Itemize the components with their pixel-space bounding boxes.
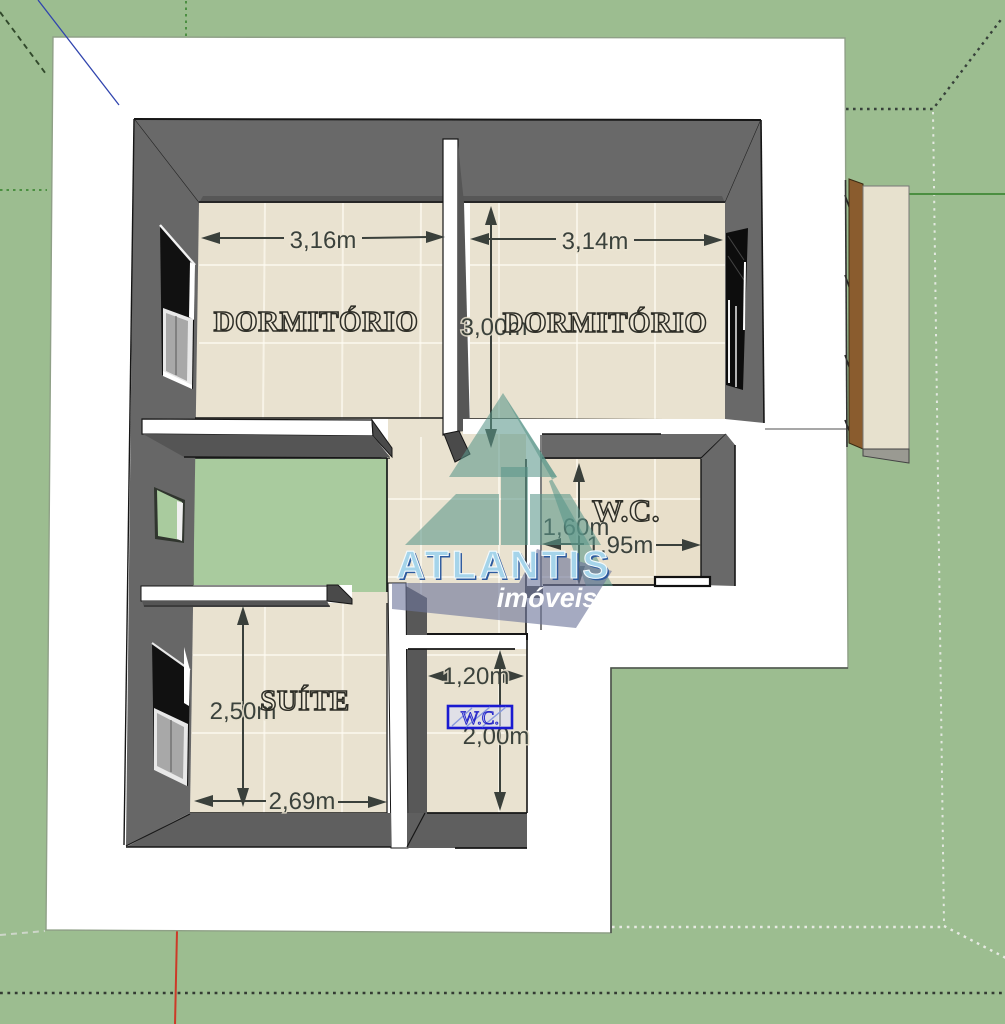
svg-text:3,14m: 3,14m <box>562 228 629 255</box>
svg-text:W.C.: W.C. <box>461 708 499 729</box>
svg-text:ATLANTIS: ATLANTIS <box>396 544 612 587</box>
svg-text:2,69m: 2,69m <box>269 788 336 815</box>
svg-text:3,16m: 3,16m <box>290 227 357 254</box>
svg-text:SUÍTE: SUÍTE <box>260 685 350 717</box>
svg-text:imóveis: imóveis <box>497 583 598 613</box>
svg-text:DORMITÓRIO: DORMITÓRIO <box>214 306 419 338</box>
svg-text:W.C.: W.C. <box>592 493 660 528</box>
svg-text:DORMITÓRIO: DORMITÓRIO <box>503 307 708 339</box>
